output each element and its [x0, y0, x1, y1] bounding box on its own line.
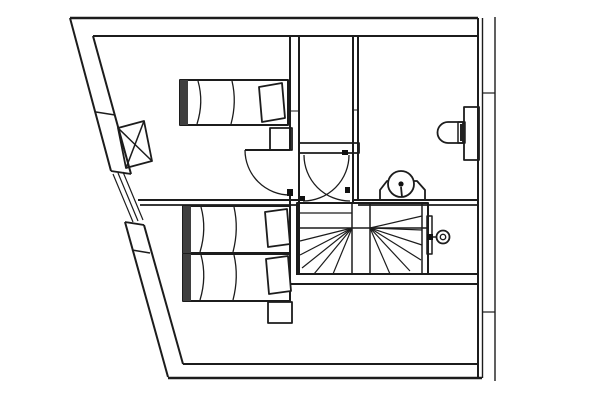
bed-single-middle — [183, 206, 290, 253]
bed-single-top-shape — [197, 81, 201, 124]
washbasin — [380, 171, 425, 200]
bed-single-middle-shape — [183, 206, 191, 253]
staircase — [297, 203, 428, 274]
staircase-shape — [314, 228, 352, 274]
slanted-west-wall-lower-shape — [125, 222, 168, 377]
bedrooms-partition-wall — [138, 200, 299, 205]
chimney-flue-shape — [126, 121, 144, 168]
staircase-shape — [297, 203, 428, 274]
nightstand — [268, 302, 292, 323]
floor-plan-canvas — [0, 0, 600, 400]
staircase-shape — [370, 216, 422, 228]
slanted-west-wall-upper-shape — [96, 112, 115, 115]
bedroom-door-shape — [287, 189, 293, 196]
double-swing-door-shape — [300, 196, 305, 201]
bed-single-top — [180, 80, 288, 125]
double-swing-door — [300, 155, 350, 201]
bed-single-top-shape — [180, 80, 188, 125]
west-window-shape — [113, 174, 133, 222]
west-window-shape — [118, 173, 138, 221]
bed-single-middle-shape — [200, 207, 204, 252]
washbasin-shape — [398, 181, 403, 186]
staircase-shape — [300, 228, 352, 255]
top-wall — [70, 18, 478, 36]
slanted-west-wall-upper-shape — [111, 171, 131, 174]
toilet — [438, 107, 480, 160]
bedroom-cabinet-shape — [270, 128, 292, 150]
under-stair-wall — [290, 274, 479, 284]
slanted-west-wall-upper-shape — [70, 18, 111, 171]
corridor-door-with-handle-shape — [437, 231, 450, 244]
slanted-west-wall-lower — [125, 222, 183, 377]
bed-single-bottom-shape — [200, 255, 204, 300]
toilet-shape — [460, 124, 465, 141]
hall-bathroom-partition-wall — [353, 36, 358, 203]
floor-plan — [0, 0, 600, 400]
slanted-west-wall-upper-shape — [93, 36, 131, 174]
bedroom-door — [245, 150, 293, 196]
bedroom-door-shape — [245, 150, 290, 195]
hall-lintel-wall-shape — [299, 143, 359, 153]
corridor-door-with-handle-shape — [440, 234, 445, 239]
bedroom-cabinet — [270, 128, 292, 150]
slanted-west-wall-lower-shape — [144, 225, 183, 364]
bed-single-bottom-shape — [266, 256, 291, 294]
double-swing-door-shape — [345, 187, 350, 193]
bed-single-top-shape — [231, 81, 234, 124]
bed-single-middle-shape — [265, 209, 290, 247]
roof-eaves-line — [482, 17, 495, 381]
nightstand-shape — [268, 302, 292, 323]
toilet-shape — [464, 107, 479, 160]
bed-single-bottom-shape — [233, 255, 236, 300]
slanted-west-wall-lower-shape — [125, 222, 144, 225]
washbasin-shape — [401, 187, 402, 197]
right-wall — [478, 18, 483, 378]
west-window-shape — [123, 172, 143, 220]
bed-single-bottom-shape — [183, 254, 191, 301]
bed-single-middle-shape — [233, 207, 236, 252]
hall-lintel-wall-shape — [342, 150, 348, 155]
corridor-door-with-handle — [427, 216, 450, 254]
bed-single-top-shape — [259, 83, 285, 122]
bottom-wall — [168, 364, 482, 378]
slanted-west-wall-lower-shape — [132, 250, 150, 253]
hall-lintel-wall — [299, 143, 359, 155]
bed-single-bottom — [183, 254, 291, 301]
toilet-shape — [438, 122, 464, 143]
west-window — [113, 172, 143, 222]
corridor-door-with-handle-shape — [427, 234, 433, 240]
